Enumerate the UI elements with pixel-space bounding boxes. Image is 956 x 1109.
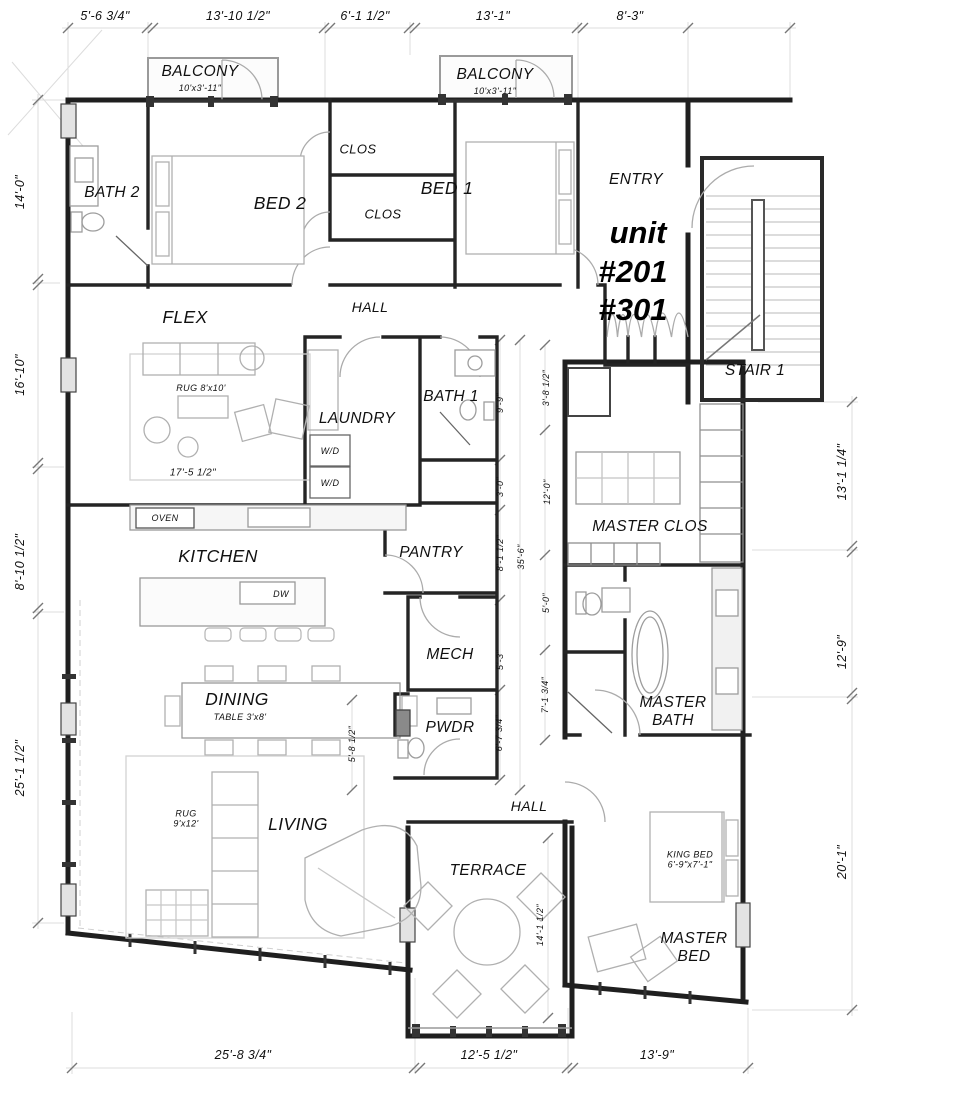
dim-int-35-6: 35'-6" [516, 544, 526, 569]
ann-oven: OVEN [151, 513, 178, 523]
dim-left-1: 14'-0" [13, 175, 27, 209]
ann-dining-table: TABLE 3'x8' [214, 712, 267, 722]
dim-bottom-2: 12'-5 1/2" [461, 1048, 518, 1062]
dim-right-2: 12'-9" [835, 635, 849, 669]
room-kitchen: KITCHEN [178, 546, 258, 566]
ann-flex-width: 17'-5 1/2" [170, 467, 216, 479]
room-bed2: BED 2 [254, 193, 307, 213]
room-balcony-right-size: 10'x3'-11" [474, 86, 517, 96]
room-pantry: PANTRY [399, 544, 463, 562]
dim-int-5-0: 5'-0" [541, 593, 551, 613]
room-living: LIVING [268, 814, 328, 834]
room-bed1: BED 1 [421, 178, 474, 198]
dim-bottom-1: 25'-8 3/4" [215, 1048, 272, 1062]
dim-int-3-8: 3'-8 1/2" [541, 370, 551, 407]
room-master-bath: MASTER BATH [631, 694, 715, 730]
kitchen-stools [205, 628, 334, 641]
dim-int-7-1: 7'-1 3/4" [540, 677, 550, 714]
dim-left-4: 25'-1 1/2" [13, 740, 27, 797]
room-clos-upper: CLOS [339, 143, 376, 158]
living-furniture [126, 756, 421, 938]
room-terrace: TERRACE [450, 862, 527, 880]
room-hall-upper: HALL [352, 299, 389, 315]
dining-table [165, 666, 417, 755]
ann-flex-rug: RUG 8'x10' [176, 383, 225, 393]
dim-int-6-7: 6'-7 3/4" [494, 715, 504, 752]
dim-top-1: 5'-6 3/4" [80, 9, 129, 23]
dim-int-3-0: 3'-0" [495, 477, 505, 497]
bed1 [466, 142, 574, 254]
ann-living-rug: RUG 9'x12' [166, 809, 206, 830]
room-balcony-left-size: 10'x3'-11" [179, 83, 222, 93]
bath1-fixtures [455, 350, 495, 420]
dim-top-2: 13'-10 1/2" [206, 9, 270, 23]
room-balcony-right: BALCONY [457, 66, 534, 84]
ann-washer: W/D [321, 446, 340, 456]
room-flex: FLEX [162, 307, 207, 327]
flex-furniture [130, 343, 310, 480]
room-bath1: BATH 1 [423, 388, 479, 406]
stair-treads [706, 196, 820, 365]
dim-top-4: 13'-1" [476, 9, 510, 23]
ann-dishwasher: DW [273, 589, 289, 599]
ann-dryer: W/D [321, 478, 340, 488]
room-balcony-left: BALCONY [162, 63, 239, 81]
piano [305, 826, 421, 936]
dim-int-8-1: 8'-1 1/2" [495, 535, 505, 572]
room-entry: ENTRY [609, 171, 663, 189]
dim-top-3: 6'-1 1/2" [340, 9, 389, 23]
room-master-bed: MASTER BED [652, 930, 736, 966]
room-hall-lower: HALL [511, 798, 548, 814]
room-master-clos: MASTER CLOS [592, 518, 708, 536]
dim-int-5-8: 5'-8 1/2" [347, 726, 357, 763]
floor-plan: 5'-6 3/4" 13'-10 1/2" 6'-1 1/2" 13'-1" 8… [0, 0, 956, 1109]
dim-int-5-3: 5'-3" [495, 650, 505, 670]
dim-bottom-3: 13'-9" [640, 1048, 674, 1062]
dim-right-3: 20'-1" [835, 845, 849, 879]
floor-plan-geometry [0, 0, 956, 1109]
room-stair1: STAIR 1 [725, 362, 785, 380]
dim-left-3: 8'-10 1/2" [13, 534, 27, 591]
dim-right-1: 13'-1 1/4" [835, 444, 849, 501]
room-dining: DINING [205, 689, 269, 709]
unit-number-201: #201 [599, 254, 668, 290]
dim-int-12-0: 12'-0" [542, 479, 552, 504]
room-pwdr: PWDR [426, 719, 475, 737]
unit-number-301: #301 [599, 292, 668, 328]
dim-int-14-1: 14'-1 1/2" [535, 904, 545, 946]
room-bath2: BATH 2 [84, 184, 140, 202]
room-mech: MECH [426, 646, 473, 664]
dim-left-2: 16'-10" [13, 354, 27, 396]
unit-label: unit [610, 215, 667, 251]
room-laundry: LAUNDRY [319, 410, 395, 428]
ann-king-bed: KING BED 6'-9"x7'-1" [650, 850, 730, 871]
room-clos-lower: CLOS [364, 208, 401, 223]
dim-int-9-9: 9'-9" [495, 393, 505, 413]
dim-top-5: 8'-3" [617, 9, 644, 23]
